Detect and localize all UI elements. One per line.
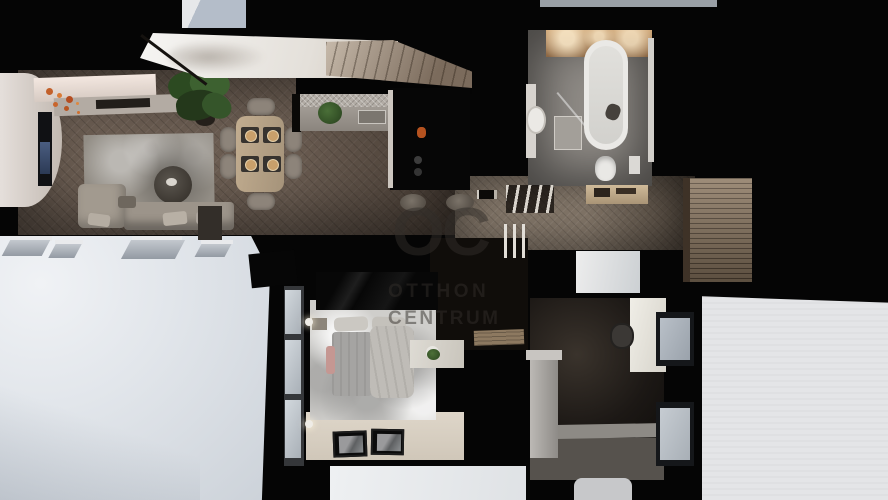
picture-frame (371, 429, 404, 456)
island-counter-edge (388, 90, 393, 188)
place-setting (263, 127, 281, 143)
white-facade (702, 290, 888, 500)
toilet (595, 156, 616, 181)
bathroom-shelf (629, 156, 640, 174)
bathroom-wall (648, 38, 654, 162)
skylight-opening (182, 0, 246, 28)
console-decor (616, 188, 636, 194)
dining-chair (247, 193, 275, 210)
bed-mattress (332, 332, 372, 396)
wall-lamp (305, 318, 313, 326)
stair-railing (504, 224, 530, 258)
frame-artwork (339, 436, 364, 454)
watermark-line2: CENTRUM (388, 309, 501, 328)
lit-doorway (576, 251, 640, 293)
study-window (656, 402, 694, 466)
wall-lamp (305, 420, 313, 428)
coat-rack (506, 185, 554, 213)
tilted-open-window (2, 240, 51, 256)
place-setting (241, 156, 259, 172)
bed-pillow (334, 316, 369, 332)
kitchen-sink (358, 110, 386, 124)
picture-frame (333, 430, 368, 457)
floorplan-render: OC OTTHON CENTRUM (0, 0, 888, 500)
window-glass (660, 408, 690, 460)
place-setting (241, 127, 259, 143)
dining-chair (220, 154, 237, 179)
dining-chair (220, 127, 237, 152)
tilted-open-window (121, 240, 185, 259)
tv-screen (40, 142, 50, 174)
sideboard-dark-tray (96, 98, 150, 109)
terrace-shadow (0, 380, 200, 500)
watermark-line1: OTTHON (388, 282, 489, 301)
shower-tray (554, 116, 582, 150)
lower-room-white-floor (330, 466, 526, 500)
study-window (656, 312, 694, 366)
window-pane (285, 400, 301, 458)
top-wall-edge (540, 0, 717, 7)
bed-duvet (370, 326, 414, 398)
console-decor (594, 188, 610, 197)
nightstand (312, 318, 327, 330)
sofa-throw (118, 196, 136, 208)
orange-flowers (46, 88, 53, 95)
coffee-table-dish (166, 178, 177, 186)
black-wall-corner (248, 250, 297, 289)
desk-plant (427, 349, 440, 360)
cooktop-burner (414, 156, 422, 164)
office-chair (610, 323, 634, 349)
cooktop-burner (414, 168, 422, 176)
place-setting (263, 156, 281, 172)
kitchen-plant (318, 102, 342, 124)
window-pane (285, 290, 301, 334)
study-pillar-cap (526, 350, 562, 360)
sofa-pillow (162, 211, 187, 226)
study-pillar (530, 356, 558, 458)
frame-artwork (377, 434, 401, 451)
dining-cabinet (198, 206, 222, 240)
wood-slat-wall (690, 178, 752, 282)
window-glass (660, 318, 690, 360)
dining-chair (247, 98, 275, 115)
round-basin (526, 106, 546, 134)
exterior-gray-shape (574, 478, 632, 500)
watermark-logo: OC (392, 198, 488, 266)
bed-throw (326, 346, 335, 374)
orange-pot (417, 127, 426, 138)
kitchen-island (390, 88, 470, 190)
study-concrete-strip (556, 423, 664, 439)
bench (474, 329, 524, 346)
window-pane (285, 340, 301, 394)
bathtub-inner (589, 46, 623, 144)
dining-chair (285, 154, 302, 179)
